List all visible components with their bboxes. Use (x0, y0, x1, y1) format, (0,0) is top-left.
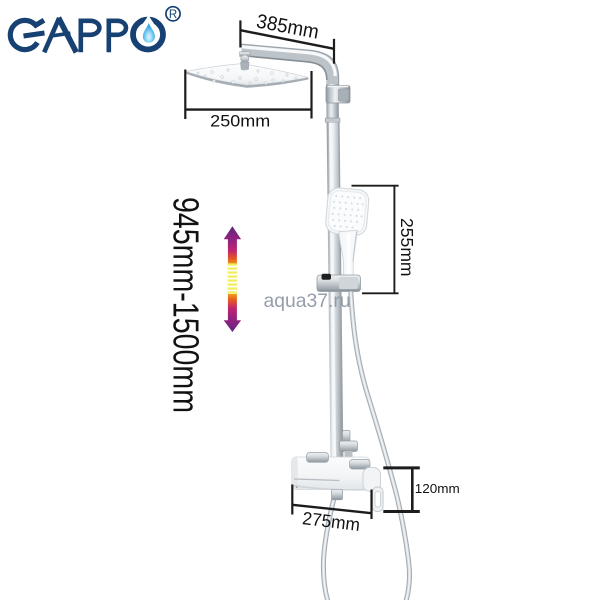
svg-text:120mm: 120mm (415, 481, 460, 496)
svg-text:255mm: 255mm (397, 218, 417, 276)
svg-text:R: R (169, 9, 177, 21)
svg-text:250mm: 250mm (210, 112, 270, 131)
svg-text:945mm-1500mm: 945mm-1500mm (166, 197, 207, 413)
svg-text:aqua37.ru: aqua37.ru (264, 290, 351, 312)
